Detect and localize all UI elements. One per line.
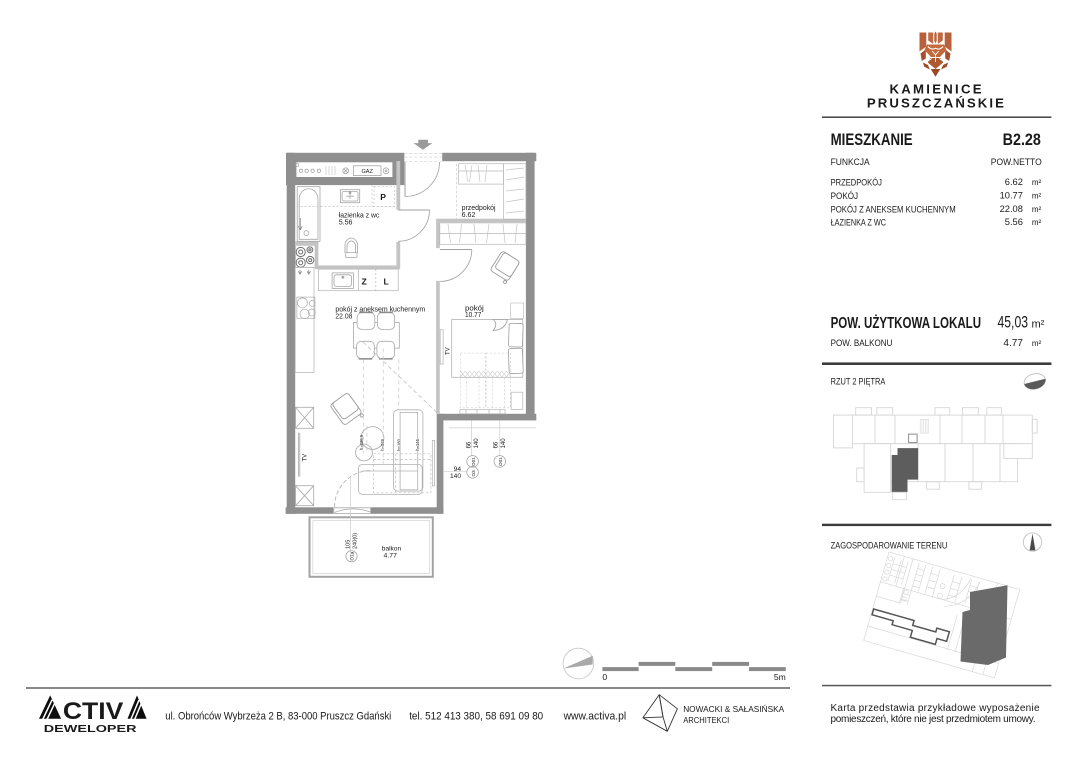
svg-text:45,03: 45,03 bbox=[998, 314, 1029, 332]
svg-text:NOWACKI & SAŁASIŃSKA: NOWACKI & SAŁASIŃSKA bbox=[683, 704, 784, 714]
svg-text:4.77: 4.77 bbox=[1003, 338, 1023, 349]
svg-text:h=029: h=029 bbox=[380, 438, 385, 450]
svg-text:CTIV: CTIV bbox=[63, 698, 123, 725]
svg-text:RZUT 2 PIĘTRA: RZUT 2 PIĘTRA bbox=[831, 376, 886, 387]
svg-text:FUNKCJA: FUNKCJA bbox=[831, 157, 871, 168]
svg-text:PRUSZCZAŃSKIE: PRUSZCZAŃSKIE bbox=[867, 95, 1006, 110]
svg-text:PRZEDPOKÓJ: PRZEDPOKÓJ bbox=[831, 178, 882, 188]
svg-text:ul. Obrońców Wybrzeża 2 B, 83: ul. Obrońców Wybrzeża 2 B, 83-000 Pruszc… bbox=[165, 710, 391, 722]
svg-text:6.62: 6.62 bbox=[462, 210, 476, 219]
svg-text:6.62: 6.62 bbox=[1005, 177, 1023, 187]
svg-text:MIESZKANIE: MIESZKANIE bbox=[831, 131, 913, 149]
svg-text:140: 140 bbox=[450, 473, 461, 480]
svg-text:m²: m² bbox=[1032, 339, 1042, 348]
svg-text:m²: m² bbox=[1032, 192, 1042, 201]
svg-text:4.77: 4.77 bbox=[384, 552, 398, 559]
svg-text:POW. UŻYTKOWA LOKALU: POW. UŻYTKOWA LOKALU bbox=[831, 314, 982, 332]
svg-text:5m: 5m bbox=[774, 672, 786, 682]
svg-text:66: 66 bbox=[467, 441, 473, 448]
svg-text:94: 94 bbox=[454, 466, 462, 473]
svg-text:pomieszczeń, które nie jest pr: pomieszczeń, które nie jest przedmiotem … bbox=[831, 714, 1036, 725]
svg-text:5.56: 5.56 bbox=[339, 217, 353, 226]
svg-text:ZAGOSPODAROWANIE TERENU: ZAGOSPODAROWANIE TERENU bbox=[831, 540, 948, 551]
svg-text:tel. 512 413 380, 58 691 09 80: tel. 512 413 380, 58 691 09 80 bbox=[409, 710, 543, 722]
svg-text:TV: TV bbox=[303, 454, 309, 462]
svg-text:66: 66 bbox=[494, 441, 500, 448]
svg-text:Z: Z bbox=[362, 276, 367, 286]
svg-text:22.08: 22.08 bbox=[1000, 204, 1023, 214]
svg-text:10.77: 10.77 bbox=[465, 310, 481, 319]
svg-text:TV: TV bbox=[446, 347, 452, 355]
svg-text:O01: O01 bbox=[498, 457, 503, 466]
svg-text:P: P bbox=[380, 192, 386, 202]
svg-text:POW.NETTO: POW.NETTO bbox=[991, 157, 1042, 168]
svg-text:ARCHITEKCI: ARCHITEKCI bbox=[683, 715, 729, 725]
svg-text:GAZ: GAZ bbox=[361, 169, 373, 175]
svg-text:105: 105 bbox=[346, 540, 352, 549]
svg-text:L: L bbox=[384, 276, 389, 286]
svg-text:m²: m² bbox=[1032, 178, 1042, 187]
svg-text:h=085.5: h=085.5 bbox=[359, 434, 364, 450]
svg-text:240(0): 240(0) bbox=[352, 533, 358, 549]
svg-text:140: 140 bbox=[501, 438, 507, 449]
svg-text:10.77: 10.77 bbox=[1000, 191, 1023, 201]
svg-text:B2.28: B2.28 bbox=[1003, 131, 1041, 149]
svg-text:h=180: h=180 bbox=[397, 438, 402, 450]
svg-text:m²: m² bbox=[1032, 205, 1042, 214]
svg-text:m²: m² bbox=[1032, 319, 1045, 331]
svg-text:O1a: O1a bbox=[350, 551, 355, 560]
svg-text:140: 140 bbox=[474, 438, 480, 449]
svg-text:DEWELOPER: DEWELOPER bbox=[44, 724, 137, 735]
svg-text:O3: O3 bbox=[471, 470, 476, 477]
svg-text:Karta przedstawia przykładowe: Karta przedstawia przykładowe wyposażeni… bbox=[831, 703, 1040, 714]
svg-text:www.activa.pl: www.activa.pl bbox=[563, 710, 627, 722]
svg-text:O01: O01 bbox=[471, 457, 476, 466]
svg-text:22.08: 22.08 bbox=[335, 311, 352, 320]
svg-text:m²: m² bbox=[1032, 218, 1042, 227]
svg-text:0: 0 bbox=[602, 672, 607, 682]
svg-text:POKÓJ Z ANEKSEM KUCHENNYM: POKÓJ Z ANEKSEM KUCHENNYM bbox=[831, 204, 956, 214]
svg-text:POKÓJ: POKÓJ bbox=[831, 191, 859, 201]
svg-text:5.56: 5.56 bbox=[1005, 217, 1023, 227]
svg-text:POW. BALKONU: POW. BALKONU bbox=[831, 338, 893, 349]
svg-text:ŁAZIENKA Z WC: ŁAZIENKA Z WC bbox=[831, 218, 887, 228]
